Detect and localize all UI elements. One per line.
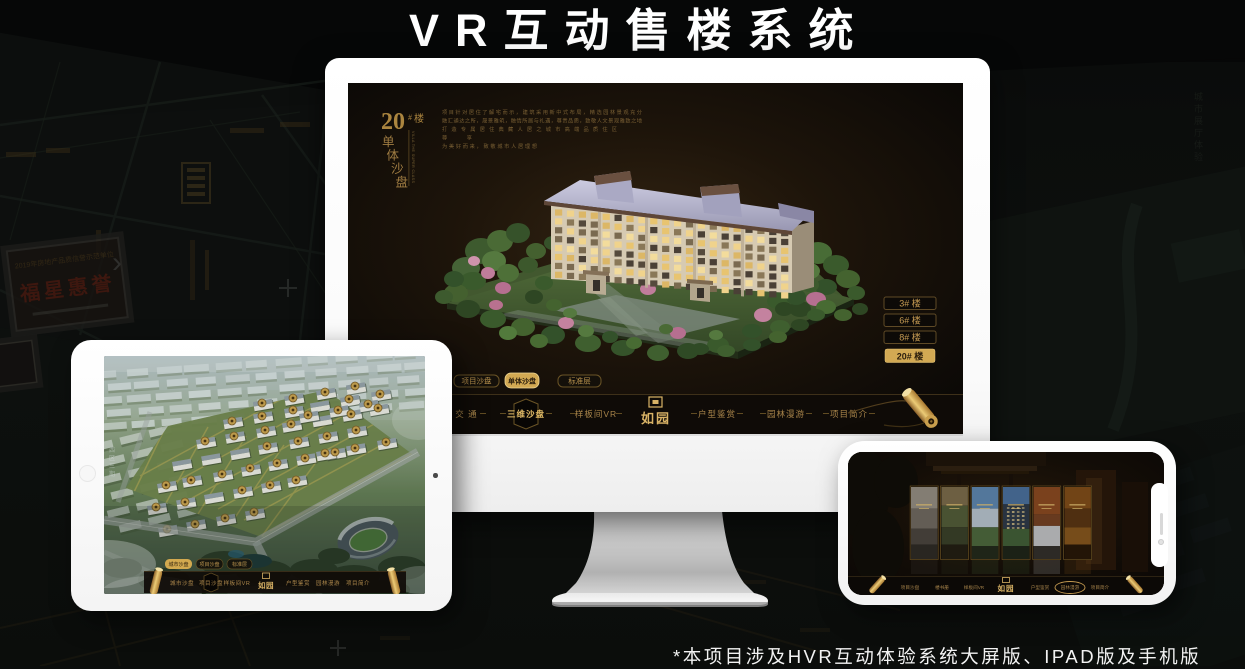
svg-text:20# 楼: 20# 楼 [897, 351, 924, 362]
svg-text:8# 楼: 8# 楼 [899, 332, 921, 343]
svg-text:融汇通达之所，晟景雅筑，融情所居与礼遇，尊贵品质，致敬人文景: 融汇通达之所，晟景雅筑，融情所居与礼遇，尊贵品质，致敬人文景观雅致之地 [442, 117, 642, 125]
svg-text:项目简介: 项目简介 [1091, 584, 1110, 591]
svg-text:园林漫游: 园林漫游 [767, 409, 805, 419]
svg-text:展: 展 [1194, 116, 1203, 126]
svg-text:户型鉴赏: 户型鉴赏 [286, 579, 310, 587]
svg-text:城: 城 [1194, 92, 1203, 102]
svg-text:样板间VR: 样板间VR [224, 579, 251, 587]
svg-text:园林漫游: 园林漫游 [316, 579, 340, 587]
svg-text:楼书册: 楼书册 [935, 584, 949, 591]
svg-text:三维沙盘: 三维沙盘 [507, 409, 545, 419]
svg-text:20: 20 [381, 109, 405, 135]
svg-text:为美好而来，致敬城市人居理想: 为美好而来，致敬城市人居理想 [442, 142, 537, 150]
svg-text:户型鉴赏: 户型鉴赏 [698, 409, 736, 419]
svg-text:城市沙盘: 城市沙盘 [168, 561, 188, 568]
svg-text:如园: 如园 [641, 411, 671, 426]
svg-text:单: 单 [382, 135, 395, 149]
svg-text:盘: 盘 [396, 175, 409, 190]
svg-text:如园: 如园 [998, 583, 1015, 593]
svg-text:标准层: 标准层 [568, 376, 591, 386]
svg-text:厅: 厅 [1194, 128, 1203, 138]
svg-text:验: 验 [1194, 151, 1203, 162]
svg-text:#: # [408, 113, 412, 122]
svg-text:楼: 楼 [414, 112, 424, 125]
svg-text:项目沙盘: 项目沙盘 [199, 561, 219, 568]
svg-text:单体沙盘: 单体沙盘 [508, 377, 536, 386]
svg-text:6# 楼: 6# 楼 [899, 315, 921, 326]
svg-text:样板间VR: 样板间VR [964, 584, 985, 591]
svg-text:项目沙盘: 项目沙盘 [462, 376, 492, 386]
svg-text:项目针对居住了解宅而示，建筑采用新中式布局，精选园林景观充分: 项目针对居住了解宅而示，建筑采用新中式布局，精选园林景观充分 [442, 108, 642, 116]
svg-text:市: 市 [1194, 103, 1203, 114]
svg-text:›: › [112, 246, 122, 279]
svg-text:如园: 如园 [258, 580, 274, 590]
svg-text:项目简介: 项目简介 [830, 409, 868, 419]
svg-text:体: 体 [1194, 139, 1203, 150]
svg-text:园林漫游: 园林漫游 [1061, 584, 1080, 591]
svg-text:样板间VR: 样板间VR [575, 409, 617, 419]
svg-text:3# 楼: 3# 楼 [899, 298, 921, 309]
svg-text:项目沙盘: 项目沙盘 [199, 579, 223, 587]
svg-text:标准层: 标准层 [232, 561, 247, 568]
svg-text:项目沙盘: 项目沙盘 [901, 584, 920, 591]
svg-text:城市沙盘: 城市沙盘 [170, 579, 194, 587]
svg-text:体: 体 [387, 149, 400, 163]
svg-text:沙: 沙 [391, 162, 404, 176]
svg-text:项目简介: 项目简介 [346, 579, 370, 587]
svg-text:VILLA THE SUPER CLASS: VILLA THE SUPER CLASS [411, 131, 415, 183]
svg-text:户型鉴赏: 户型鉴赏 [1031, 584, 1050, 591]
